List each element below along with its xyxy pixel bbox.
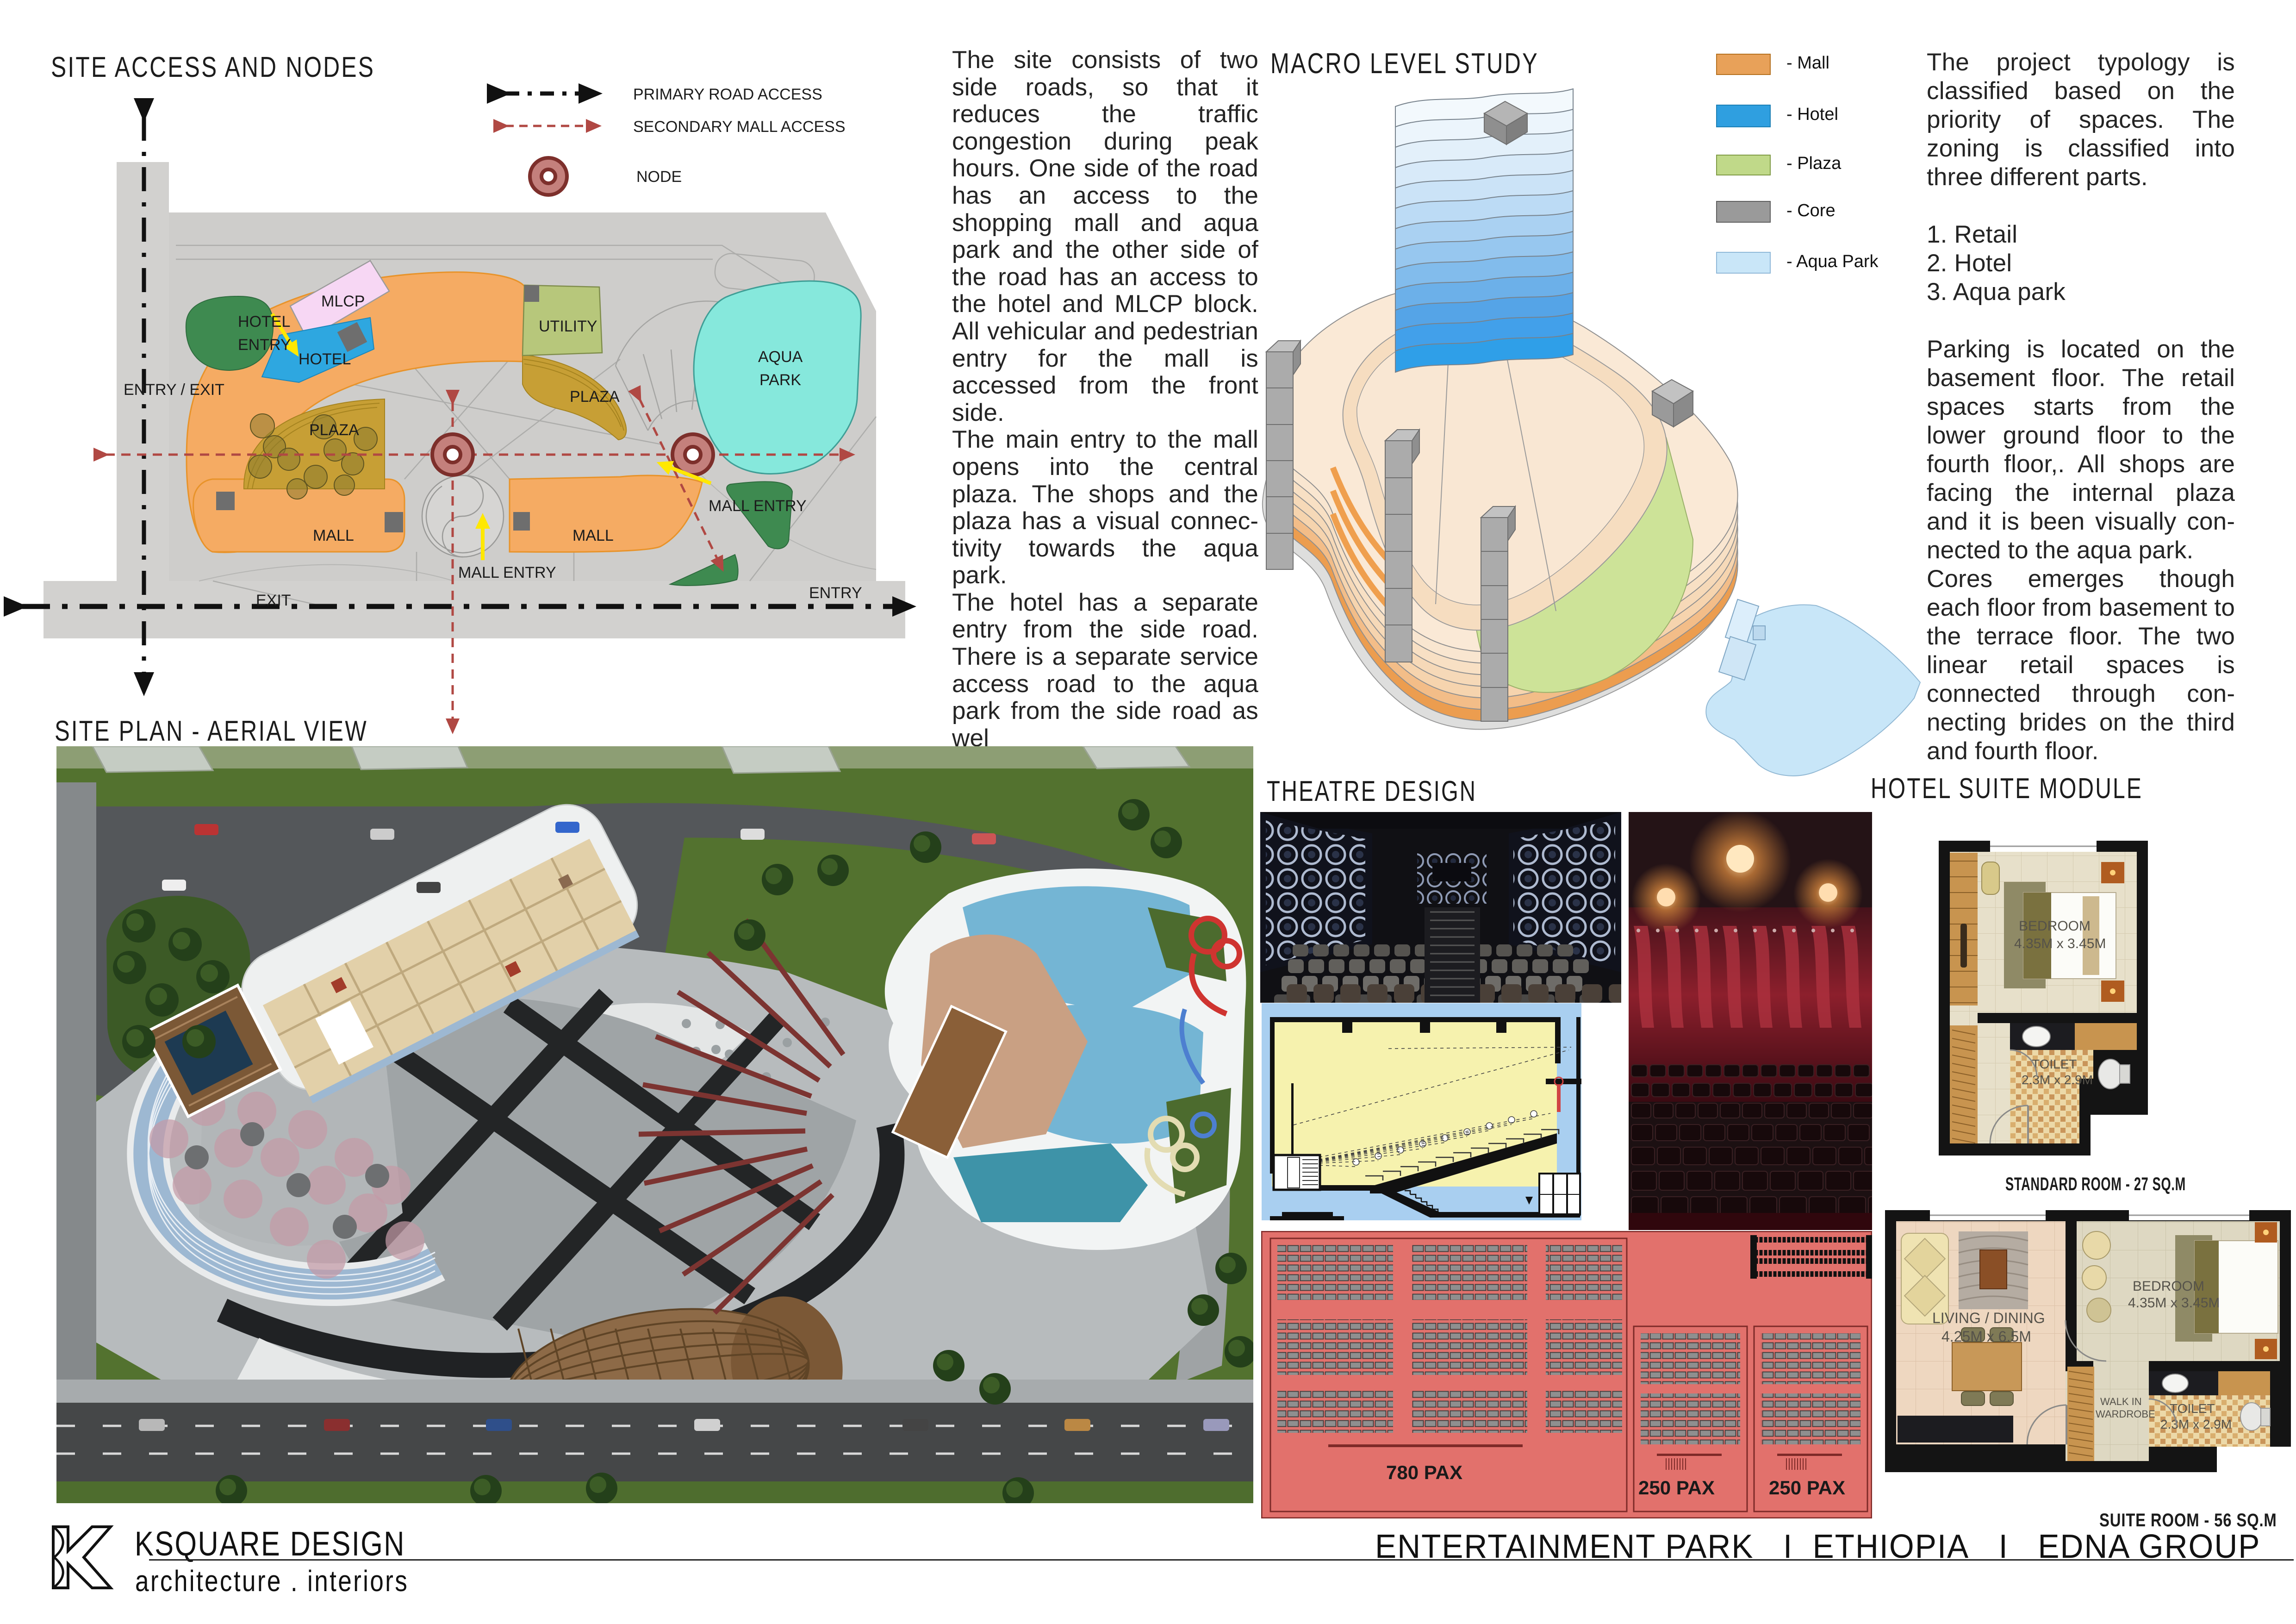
svg-text:BEDROOM: BEDROOM [2133,1279,2204,1294]
svg-text:EXIT: EXIT [256,592,291,609]
svg-text:ENTRY / EXIT: ENTRY / EXIT [124,381,224,399]
svg-text:SECONDARY MALL ACCESS: SECONDARY MALL ACCESS [633,118,846,136]
svg-text:BEDROOM: BEDROOM [2019,918,2091,934]
svg-text:PARK: PARK [759,371,801,389]
svg-text:TOILET: TOILET [2170,1401,2215,1416]
svg-text:PLAZA: PLAZA [309,421,359,439]
svg-text:MALL ENTRY: MALL ENTRY [709,497,807,515]
svg-text:MALL: MALL [313,527,354,544]
svg-text:MLCP: MLCP [321,293,365,310]
svg-text:HOTEL: HOTEL [238,313,290,331]
svg-text:LIVING / DINING: LIVING / DINING [1932,1310,2045,1326]
svg-text:ENTRY: ENTRY [238,336,291,354]
svg-text:ENTRY: ENTRY [809,584,862,602]
svg-text:780 PAX: 780 PAX [1386,1462,1462,1483]
svg-text:4.25M x 6.5M: 4.25M x 6.5M [1941,1328,2031,1345]
svg-text:MALL ENTRY: MALL ENTRY [458,564,556,581]
svg-text:HOTEL: HOTEL [299,350,351,368]
svg-text:PLAZA: PLAZA [570,388,620,406]
svg-text:250 PAX: 250 PAX [1638,1477,1715,1499]
svg-text:250 PAX: 250 PAX [1769,1477,1845,1499]
svg-text:NODE: NODE [636,168,682,186]
svg-text:WARDROBE: WARDROBE [2096,1408,2155,1420]
svg-text:2.3M x 2.9M: 2.3M x 2.9M [2022,1073,2093,1087]
svg-text:TOILET: TOILET [2032,1057,2077,1071]
svg-text:MALL: MALL [572,527,614,544]
svg-text:WALK IN: WALK IN [2100,1396,2142,1407]
svg-text:4.35M x 3.45M: 4.35M x 3.45M [2128,1295,2220,1311]
svg-text:PRIMARY ROAD ACCESS: PRIMARY ROAD ACCESS [633,86,822,103]
svg-text:UTILITY: UTILITY [539,318,597,335]
svg-text:AQUA: AQUA [758,348,803,366]
svg-text:2.3M x 2.9M: 2.3M x 2.9M [2160,1417,2232,1431]
svg-text:4.35M x 3.45M: 4.35M x 3.45M [2014,936,2106,951]
